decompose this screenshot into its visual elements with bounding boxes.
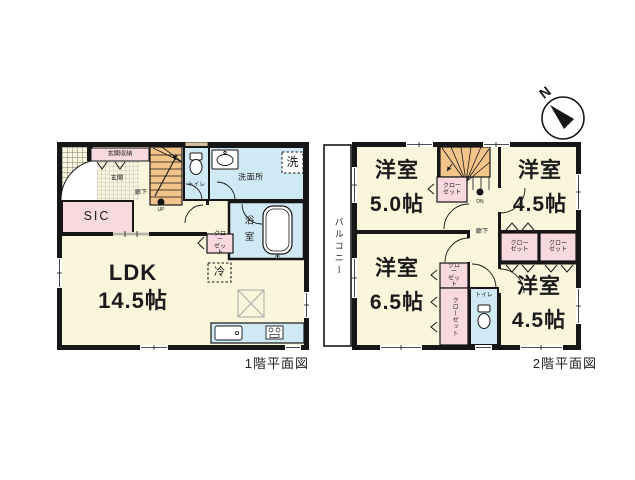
fridge-label: 冷 <box>208 263 231 282</box>
closet-label-1f: クロー ゼット <box>212 238 228 249</box>
ldk-size: 14.5帖 <box>98 287 168 315</box>
sic-label: SIC <box>67 208 127 226</box>
room-br-size: 4.5帖 <box>512 304 566 338</box>
hallway-label-1f: 廊下 <box>129 189 154 198</box>
floorplan-canvas: 玄関収納 玄関 SIC 廊下 UP トイレ 洗面所 洗 浴室 クロー ゼット 冷… <box>0 0 635 480</box>
washroom-label: 洗面所 <box>230 173 272 184</box>
floor1-caption: 1階平面図 <box>57 353 309 372</box>
entrance-storage-label: 玄関収納 <box>102 150 138 158</box>
entrance-label: 玄関 <box>103 175 130 182</box>
washbasin-icon <box>212 150 238 169</box>
toilet-label-2f: トイレ <box>476 292 492 298</box>
stairs-up-post <box>158 199 165 206</box>
toilet-icon <box>190 153 202 175</box>
closet-left-upper-label: クロー ゼット <box>446 268 463 283</box>
compass: N <box>533 78 595 142</box>
kitchen-sink-icon <box>215 326 242 340</box>
floor2-caption: 2階平面図 <box>323 353 597 372</box>
room-tr-size: 4.5帖 <box>513 188 567 222</box>
ldk-label: LDK 14.5帖 <box>75 258 191 316</box>
ldk-name: LDK <box>109 259 157 287</box>
room-br-name: 洋室 <box>517 270 561 304</box>
room-bl-size: 6.5帖 <box>370 286 424 320</box>
room-tr-name: 洋室 <box>518 154 562 188</box>
balcony-label: バルコニー <box>326 210 350 284</box>
room-bl-name: 洋室 <box>375 252 419 286</box>
room-tr-label: 洋室 4.5帖 <box>503 156 577 220</box>
room-tl-label: 洋室 5.0帖 <box>357 156 437 220</box>
kitchen-counter <box>211 323 304 343</box>
stairs-up <box>150 147 182 206</box>
closet-row1-label: クロー ゼット <box>508 239 530 256</box>
stairs-down-label: DN <box>474 200 486 205</box>
stove-icon <box>266 326 283 339</box>
room-tl-size: 5.0帖 <box>370 188 424 222</box>
floor1-plan: 玄関収納 玄関 SIC 廊下 UP トイレ 洗面所 洗 浴室 クロー ゼット 冷… <box>57 142 309 350</box>
bathroom-label: 浴室 <box>240 209 255 253</box>
floor2-plan: バルコニー 洋室 5.0帖 洋室 4.5帖 洋室 6.5帖 洋室 4.5帖 廊下… <box>323 142 581 350</box>
closet-stairs-label: クロー ゼット <box>443 182 461 197</box>
laundry-label: 洗 <box>282 152 303 173</box>
toilet-room-1f <box>184 142 209 200</box>
room-bl-label: 洋室 6.5帖 <box>357 254 437 318</box>
stairs-down-post <box>477 189 484 196</box>
stairs-up-label: UP <box>155 208 167 213</box>
closet-row2-label: クロー ゼット <box>547 239 569 256</box>
bathtub-icon <box>263 206 292 258</box>
compass-north-label: N <box>536 83 554 102</box>
closet-left-lower-label: クローゼット <box>446 299 463 333</box>
toilet-icon-2f <box>478 305 490 329</box>
hallway-label-2f: 廊下 <box>472 228 492 235</box>
room-br-label: 洋室 4.5帖 <box>501 272 577 336</box>
toilet-label-1f: トイレ <box>188 182 205 189</box>
room-tl-name: 洋室 <box>375 154 419 188</box>
